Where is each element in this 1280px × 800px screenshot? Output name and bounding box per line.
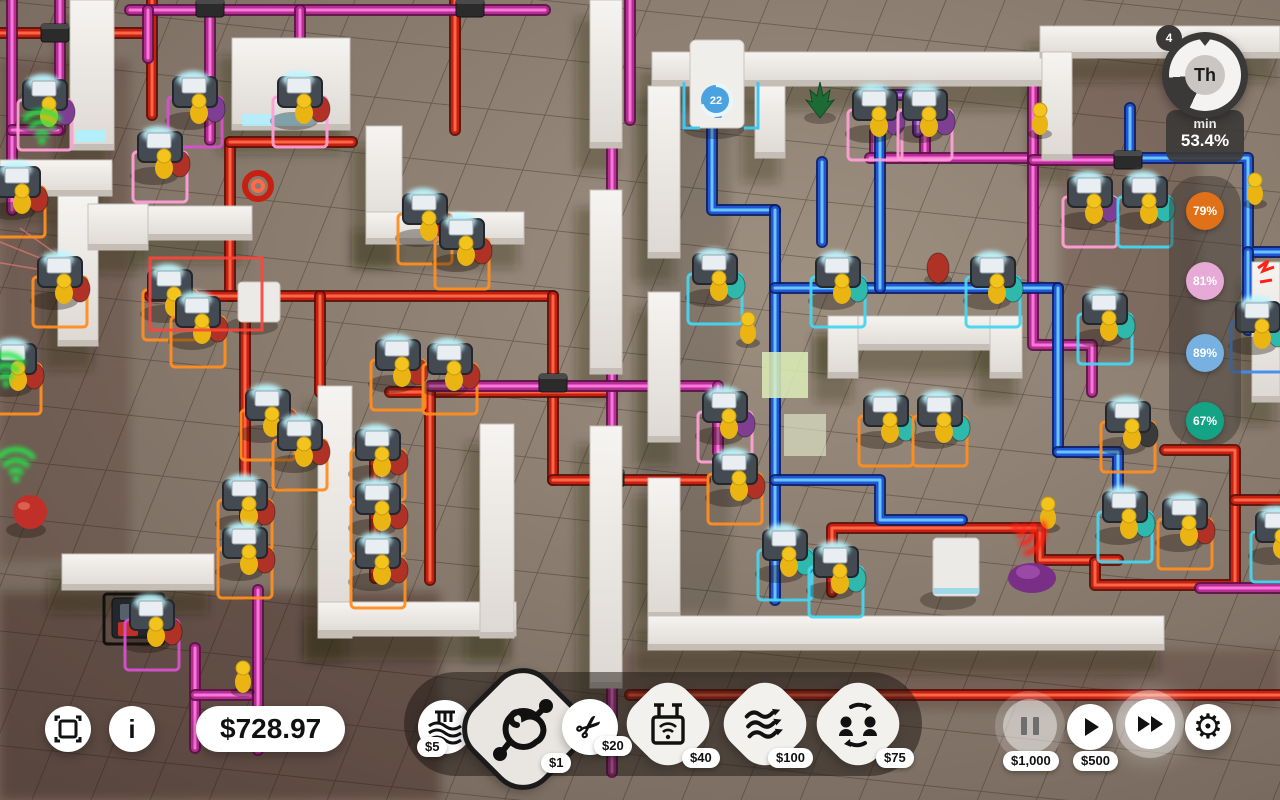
worker-head	[459, 236, 473, 250]
cable-connector[interactable]	[456, 0, 484, 17]
price-pause: $1,000	[1003, 751, 1059, 771]
day-label: Th	[1185, 55, 1225, 95]
worker-head	[242, 545, 256, 559]
worker-head	[242, 497, 256, 511]
fast-forward-button[interactable]	[1125, 699, 1175, 749]
server-load-badge: 22	[710, 95, 722, 107]
laptop	[1172, 500, 1196, 515]
worker-head	[395, 357, 409, 371]
placement-highlight	[784, 414, 826, 456]
laptop	[32, 81, 56, 96]
satisfaction-gauges: 79%81%89%67%	[1169, 176, 1241, 446]
cable-connector[interactable]	[196, 0, 224, 17]
gauge-badge[interactable]: 67%	[1186, 402, 1224, 440]
info-button[interactable]: i	[109, 706, 155, 752]
price-cutter: $20	[594, 736, 632, 756]
notification-badge[interactable]: 4	[1156, 25, 1182, 51]
laptop	[1112, 493, 1136, 508]
door-light	[76, 130, 106, 142]
laptop	[5, 168, 29, 183]
worker-head	[1102, 311, 1116, 325]
gauge-badge[interactable]: 81%	[1186, 262, 1224, 300]
cable-connector[interactable]	[1114, 151, 1142, 169]
laptop	[862, 91, 886, 106]
laptop	[182, 78, 206, 93]
min-value: 53.4%	[1166, 131, 1244, 151]
worker-head	[937, 413, 951, 427]
laptop	[365, 539, 389, 554]
laptop	[1265, 513, 1280, 528]
worker-head	[732, 471, 746, 485]
info-icon: i	[128, 714, 135, 745]
play-button[interactable]	[1067, 704, 1113, 750]
worker-head	[782, 547, 796, 561]
game-viewport[interactable]: 22	[0, 0, 1280, 800]
wall	[648, 616, 1164, 650]
wifi-router-icon	[644, 700, 692, 748]
wall	[648, 478, 680, 618]
price-play: $500	[1073, 751, 1118, 771]
cable-bundle-icon	[740, 699, 790, 749]
laptop	[412, 195, 436, 210]
worker-head	[712, 271, 726, 285]
laptop	[825, 258, 849, 273]
worker-head	[375, 447, 389, 461]
laptop	[912, 91, 936, 106]
beanbag[interactable]	[1008, 563, 1056, 593]
day-dial[interactable]: Th 4	[1162, 32, 1248, 118]
worker-head	[422, 211, 436, 225]
pause-icon	[1018, 717, 1042, 735]
worker-head	[922, 107, 936, 121]
laptop	[139, 601, 163, 616]
wall	[480, 424, 514, 638]
play-icon	[1085, 718, 1099, 736]
laptop	[287, 78, 311, 93]
laptop	[873, 397, 897, 412]
gauge-badge[interactable]: 89%	[1186, 334, 1224, 372]
worker-head	[835, 274, 849, 288]
fast-forward-icon	[1138, 716, 1163, 732]
cable-connector[interactable]	[539, 374, 567, 392]
settings-button[interactable]: ⚙	[1185, 704, 1231, 750]
placement-highlight	[762, 352, 808, 398]
wall	[590, 426, 622, 688]
worker-head	[1255, 319, 1269, 333]
worker-head	[375, 555, 389, 569]
laptop	[232, 529, 256, 544]
wall	[318, 386, 352, 638]
worker-head	[1125, 419, 1139, 433]
laptop	[437, 345, 461, 360]
worker-head	[157, 149, 171, 163]
laptop	[772, 531, 796, 546]
wall	[62, 554, 214, 590]
laptop	[157, 271, 181, 286]
price-cable: $1	[541, 753, 571, 773]
wall	[990, 316, 1022, 378]
laptop	[980, 258, 1004, 273]
laptop	[722, 455, 746, 470]
laptop	[255, 391, 279, 406]
min-label: min	[1166, 116, 1244, 131]
laptop	[1245, 303, 1269, 318]
worker-head	[1142, 194, 1156, 208]
worker-head	[149, 617, 163, 631]
worker-head	[883, 413, 897, 427]
laptop	[823, 548, 847, 563]
price-router: $40	[682, 748, 720, 768]
price-splitter: $5	[417, 737, 447, 757]
laptop	[1115, 403, 1139, 418]
laptop	[232, 481, 256, 496]
laptop	[449, 220, 473, 235]
laptop	[927, 397, 951, 412]
worker-head	[375, 501, 389, 515]
worker-head	[1182, 516, 1196, 530]
laptop	[185, 298, 209, 313]
worker-head	[42, 97, 56, 111]
worker-head	[990, 274, 1004, 288]
laptop	[365, 485, 389, 500]
price-staff: $75	[876, 748, 914, 768]
worker-head	[15, 184, 29, 198]
crosshair-icon	[53, 714, 83, 744]
worker-head	[265, 407, 279, 421]
wall	[590, 0, 622, 148]
wall	[148, 206, 252, 240]
laptop	[1092, 295, 1116, 310]
gauge-badge[interactable]: 79%	[1186, 192, 1224, 230]
center-view-button[interactable]	[45, 706, 91, 752]
wall	[648, 292, 680, 442]
laptop	[1132, 178, 1156, 193]
pause-button[interactable]	[1003, 699, 1057, 753]
wall	[70, 0, 114, 150]
price-bundle: $100	[768, 748, 813, 768]
worker-head	[57, 274, 71, 288]
laptop	[47, 258, 71, 273]
dial-notch-icon	[1198, 37, 1212, 46]
wall	[648, 86, 680, 258]
money-balance: $728.97	[196, 706, 345, 752]
laptop	[385, 341, 409, 356]
cable-connector[interactable]	[41, 24, 69, 42]
wall	[88, 204, 148, 250]
laptop	[147, 133, 171, 148]
worker-head	[722, 409, 736, 423]
worker-head	[297, 437, 311, 451]
worker-head	[872, 107, 886, 121]
laptop	[1077, 178, 1101, 193]
wall	[828, 316, 858, 378]
gear-icon: ⚙	[1193, 710, 1223, 744]
laptop	[365, 431, 389, 446]
laptop	[712, 393, 736, 408]
worker-head	[192, 94, 206, 108]
staff-cycle-icon	[832, 698, 884, 750]
laptop	[287, 421, 311, 436]
wall	[1042, 52, 1072, 160]
worker-head	[833, 564, 847, 578]
worker-head	[297, 94, 311, 108]
worker-head	[447, 361, 461, 375]
worker-head	[1087, 194, 1101, 208]
wall	[590, 190, 622, 374]
laptop	[702, 255, 726, 270]
worker-head	[195, 314, 209, 328]
worker-head	[1122, 509, 1136, 523]
